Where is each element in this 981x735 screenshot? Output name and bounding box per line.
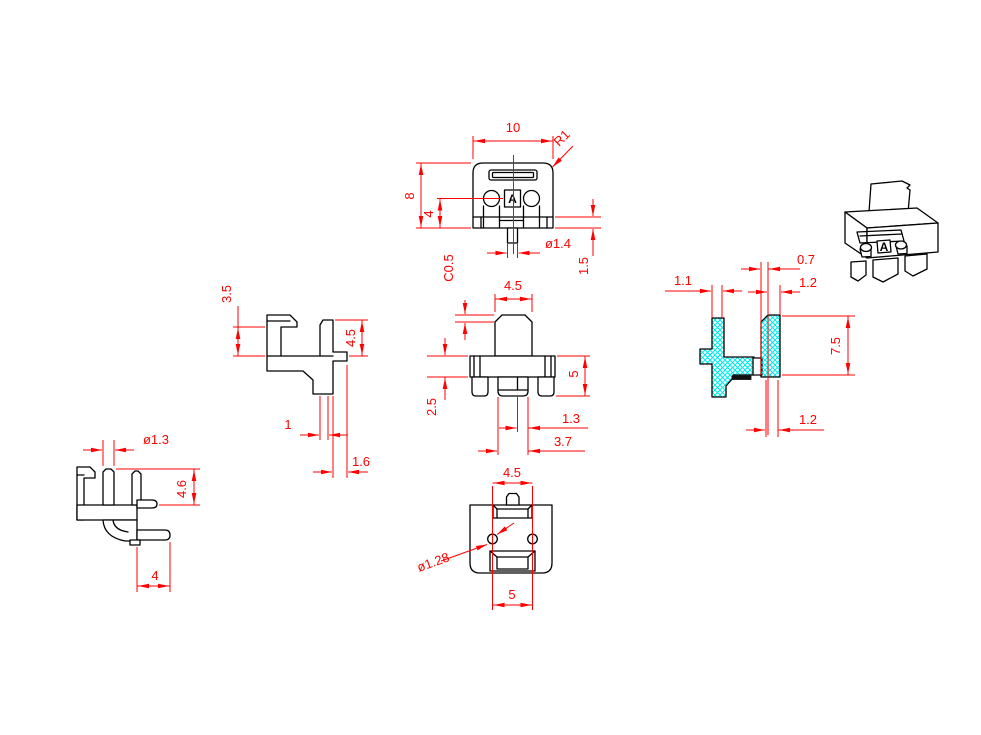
dim-front-pin-len-text: 1.5	[576, 257, 591, 275]
dim-bottom-pitch: 5	[493, 587, 533, 605]
lside-stub-upper	[137, 500, 157, 508]
dim-front-pin-dia-text: ø1.4	[545, 236, 571, 251]
section-view: 1.1 0.7 1.2 7.5	[665, 252, 855, 437]
dim-rear-leg-span: 3.7	[478, 397, 585, 455]
dim-lside-pin-dia-text: ø1.3	[143, 432, 169, 447]
isometric-view: A	[845, 181, 938, 282]
lside-foot	[130, 540, 140, 545]
dim-rear-post-w-text: 4.5	[504, 278, 522, 293]
bottom-body-outline	[470, 505, 552, 573]
lside-slab	[77, 505, 137, 520]
dim-side-post: 4.5	[335, 320, 368, 356]
lower-side-view: ø1.3 4.6 4	[77, 432, 200, 592]
dim-section-height: 7.5	[782, 316, 855, 375]
section-pin-plate	[732, 376, 751, 380]
dim-front-step: 4	[421, 199, 440, 229]
dim-rear-chamfer: C0.5	[441, 254, 494, 340]
dim-section-rib-top: 1.2	[748, 275, 817, 315]
iso-leg-center	[873, 258, 898, 282]
iso-pin-right	[896, 241, 907, 249]
dim-front-height: 8	[402, 163, 471, 228]
lside-pin-bent	[137, 530, 170, 540]
dim-side-hook-text: 3.5	[219, 285, 234, 303]
bottom-top-pin	[507, 494, 520, 506]
rear-leg-left	[472, 377, 488, 396]
dim-lside-height-text: 4.6	[174, 480, 189, 498]
rear-body-bar	[470, 356, 555, 377]
dim-rear-height-text: 5	[566, 370, 581, 377]
dim-bottom-pitch-text: 5	[508, 587, 515, 602]
rear-leg-center	[498, 377, 528, 396]
dim-section-rib-bottom: 1.2	[746, 380, 824, 437]
front-pin-hole-right	[524, 191, 540, 207]
dim-side-leg-w: 1	[284, 396, 348, 440]
dim-rear-leg-h-text: 2.5	[424, 398, 439, 416]
dim-front-radius: R1	[551, 127, 573, 167]
dim-bottom-slot-text: 4.5	[503, 465, 521, 480]
rear-view: C0.5 4.5 2.5 5	[424, 254, 590, 455]
iso-pin-left	[861, 244, 872, 252]
dim-lside-height: 4.6	[116, 469, 200, 505]
side-body-outline	[267, 315, 347, 394]
dim-rear-chamfer-text: C0.5	[441, 254, 456, 281]
side-view: 3.5 4.5 1 1.6	[219, 285, 370, 478]
dim-front-width-text: 10	[506, 120, 520, 135]
lside-pin1	[103, 469, 114, 505]
front-datum-label: A	[508, 192, 517, 206]
dim-section-rib-bottom-text: 1.2	[799, 412, 817, 427]
dim-front-pin-dia: ø1.4	[487, 236, 571, 258]
dim-front-radius-text: R1	[551, 127, 573, 149]
dim-side-leg-off-text: 1.6	[352, 454, 370, 469]
dim-front-width: 10	[473, 120, 553, 159]
dim-rear-leg-h: 2.5	[424, 338, 468, 416]
dim-section-wall: 1.1	[665, 273, 742, 318]
iso-datum-label: A	[880, 240, 889, 254]
dim-rear-post-w: 4.5	[495, 278, 532, 312]
dim-lside-pin-len: 4	[137, 542, 170, 592]
dim-section-height-text: 7.5	[828, 337, 843, 355]
dim-lside-pin-dia: ø1.3	[83, 432, 169, 466]
dim-rear-pin-w: 1.3	[499, 397, 588, 432]
dim-front-height-text: 8	[402, 192, 417, 199]
iso-leg-left	[851, 261, 866, 281]
dim-section-rib-top-text: 1.2	[799, 275, 817, 290]
rear-post	[495, 315, 532, 356]
front-view: A 10 R1 8 4	[402, 120, 601, 275]
front-bottom-pin	[508, 228, 518, 243]
dim-section-wall-text: 1.1	[674, 273, 692, 288]
dim-rear-leg-span-text: 3.7	[554, 434, 572, 449]
dim-rear-pin-w-text: 1.3	[562, 411, 580, 426]
lside-lower-body	[103, 520, 137, 541]
cad-drawing-canvas: A 10 R1 8 4	[0, 0, 981, 735]
dim-bottom-hole-text: ø1.28	[415, 549, 451, 574]
dim-rear-height: 5	[556, 356, 590, 396]
rear-leg-right	[538, 377, 554, 396]
dim-front-step-text: 4	[421, 210, 436, 217]
dim-side-hook: 3.5	[219, 285, 265, 356]
bottom-view: 4.5 ø1.28 5	[415, 465, 552, 610]
dim-section-gap-text: 0.7	[797, 252, 815, 267]
dim-lside-pin-len-text: 4	[151, 568, 158, 583]
section-left-part	[700, 318, 754, 397]
section-right-part	[761, 315, 780, 377]
dim-side-leg-w-text: 1	[284, 417, 291, 432]
dim-side-post-text: 4.5	[343, 329, 358, 347]
iso-leg-right	[905, 254, 927, 276]
